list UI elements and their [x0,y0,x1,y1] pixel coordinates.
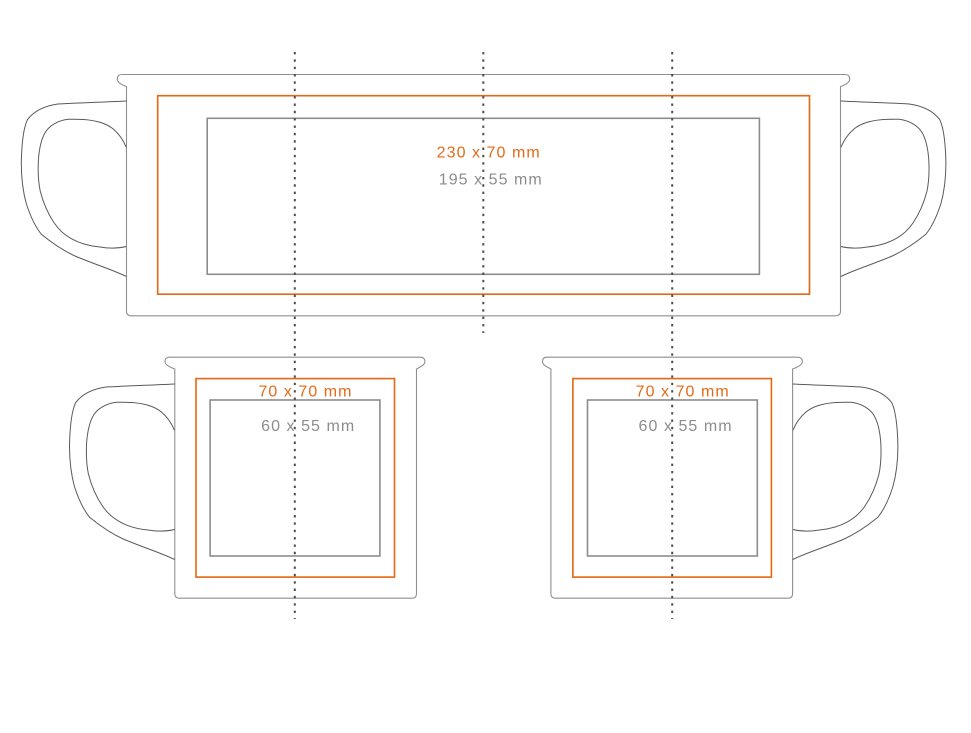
svg-text:230 x 70 mm: 230 x 70 mm [437,145,541,162]
svg-text:60 x 55 mm: 60 x 55 mm [639,418,733,435]
svg-text:60 x 55 mm: 60 x 55 mm [261,418,355,435]
svg-text:70 x 70 mm: 70 x 70 mm [636,384,730,401]
svg-text:70 x 70 mm: 70 x 70 mm [258,384,352,401]
svg-text:195 x 55 mm: 195 x 55 mm [439,171,543,188]
